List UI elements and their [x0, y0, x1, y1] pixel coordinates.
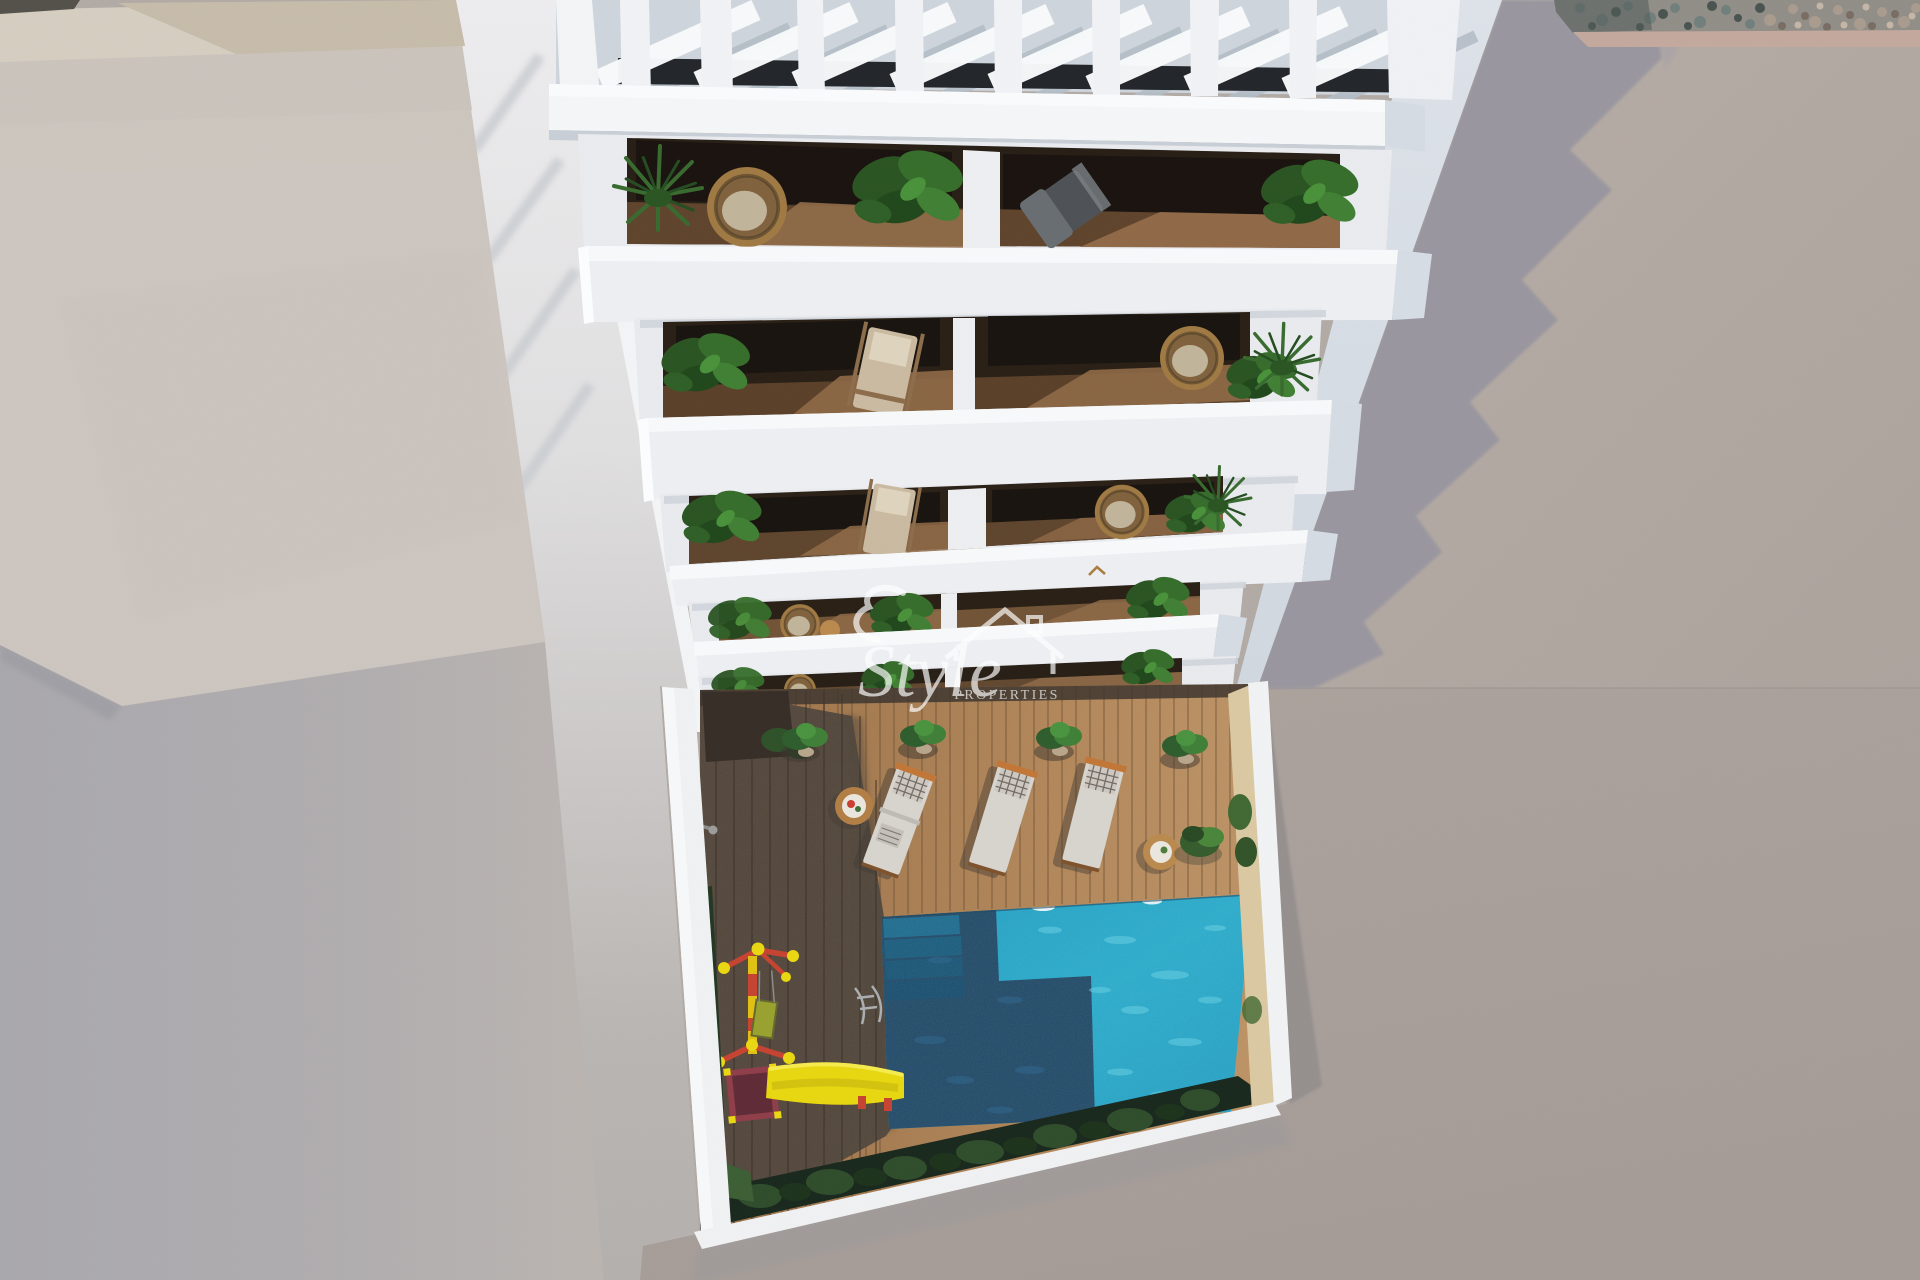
svg-text:PROPERTIES: PROPERTIES: [954, 688, 1060, 703]
